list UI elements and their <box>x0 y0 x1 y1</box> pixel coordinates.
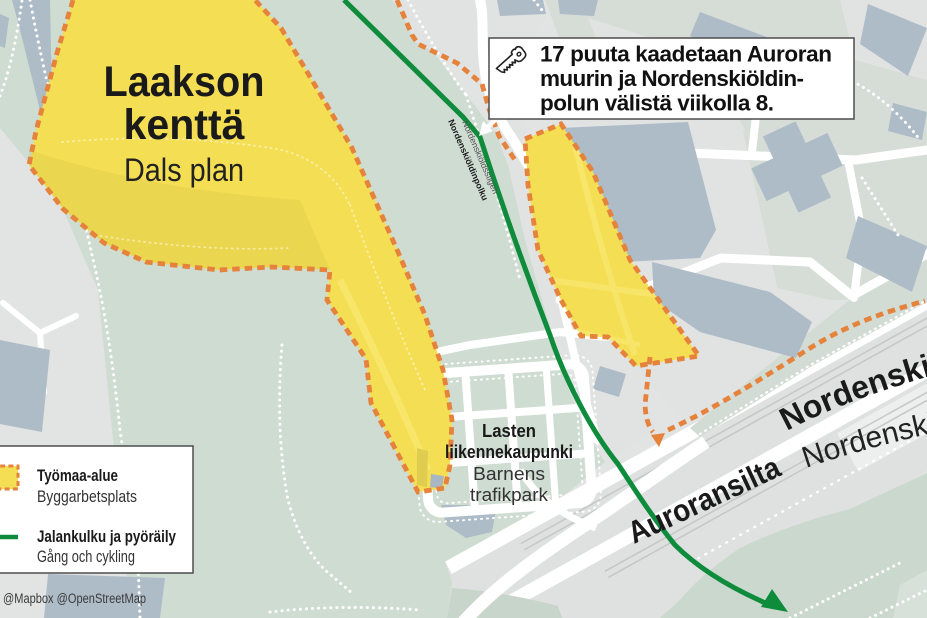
svg-text:Gång och cykling: Gång och cykling <box>37 547 135 566</box>
svg-text:Barnens: Barnens <box>473 463 545 484</box>
svg-text:Työmaa-alue: Työmaa-alue <box>37 466 118 485</box>
svg-text:17 puuta kaadetaan Auroran: 17 puuta kaadetaan Auroran <box>540 42 832 67</box>
svg-text:liikennekaupunki: liikennekaupunki <box>445 441 573 462</box>
svg-text:Laakson: Laakson <box>104 58 265 106</box>
svg-text:polun välistä viikolla 8.: polun välistä viikolla 8. <box>540 91 774 116</box>
svg-text:Dals plan: Dals plan <box>124 152 244 188</box>
svg-text:Lasten: Lasten <box>482 420 536 441</box>
svg-text:@Mapbox @OpenStreetMap: @Mapbox @OpenStreetMap <box>3 591 146 606</box>
svg-text:muurin ja Nordenskiöldin-: muurin ja Nordenskiöldin- <box>540 66 804 91</box>
svg-text:Jalankulku ja pyöräily: Jalankulku ja pyöräily <box>37 527 176 546</box>
svg-text:kenttä: kenttä <box>124 101 246 149</box>
svg-text:Byggarbetsplats: Byggarbetsplats <box>37 487 137 506</box>
svg-text:trafikpark: trafikpark <box>470 484 549 505</box>
